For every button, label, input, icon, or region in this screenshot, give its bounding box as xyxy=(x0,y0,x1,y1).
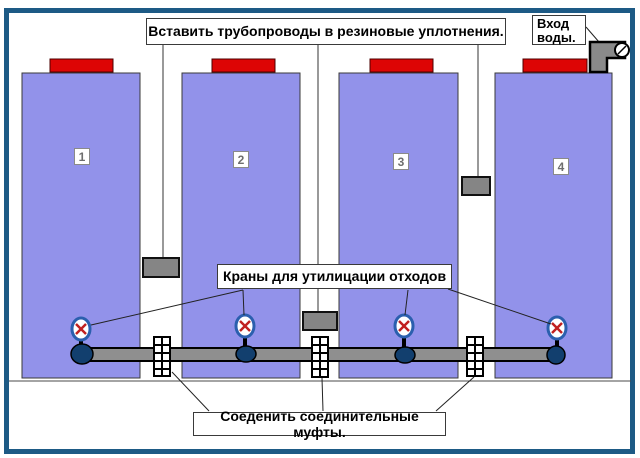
valve-icon-1 xyxy=(72,318,90,340)
tanks-piping-diagram xyxy=(0,0,640,458)
water-inlet-line1: Вход xyxy=(537,16,569,31)
couplings-note: Соеденить соединительные муфты. xyxy=(193,412,446,436)
diagram-canvas: Вставить трубопроводы в резиновые уплотн… xyxy=(0,0,640,458)
water-inlet-note: Вход воды. xyxy=(532,15,586,45)
coupling-icon-1 xyxy=(154,337,170,376)
tank-4-cap xyxy=(523,59,587,72)
tank-3-cap xyxy=(370,59,433,72)
seal-block-1 xyxy=(143,258,179,277)
seal-block-2 xyxy=(303,312,337,330)
valves-note-label: Краны для утилицации отходов xyxy=(223,268,446,284)
water-inlet-line2: воды. xyxy=(537,30,576,45)
pipe-joint-3 xyxy=(395,347,415,363)
top-note-label: Вставить трубопроводы в резиновые уплотн… xyxy=(148,23,503,39)
inlet-pipe-icon xyxy=(586,27,629,72)
tank-4-number: 4 xyxy=(553,158,569,175)
valve-icon-2 xyxy=(236,315,254,337)
seal-block-3 xyxy=(462,177,490,195)
couplings-note-label: Соеденить соединительные муфты. xyxy=(194,408,445,440)
coupling-icon-2 xyxy=(312,337,328,377)
tank-2-cap xyxy=(212,59,275,72)
tank-1-number: 1 xyxy=(74,148,90,165)
tank-3-number: 3 xyxy=(393,153,409,170)
pipe-joint-4 xyxy=(547,346,565,364)
valve-icon-4 xyxy=(548,317,566,339)
tank-1-cap xyxy=(50,59,113,72)
pipe-joint-1 xyxy=(71,344,93,364)
coupling-icon-3 xyxy=(467,337,483,376)
top-note: Вставить трубопроводы в резиновые уплотн… xyxy=(146,18,506,45)
valve-icon-3 xyxy=(395,315,413,337)
tank-2-number: 2 xyxy=(233,151,249,168)
pipe-joint-2 xyxy=(236,346,256,362)
valves-note: Краны для утилицации отходов xyxy=(217,264,452,289)
